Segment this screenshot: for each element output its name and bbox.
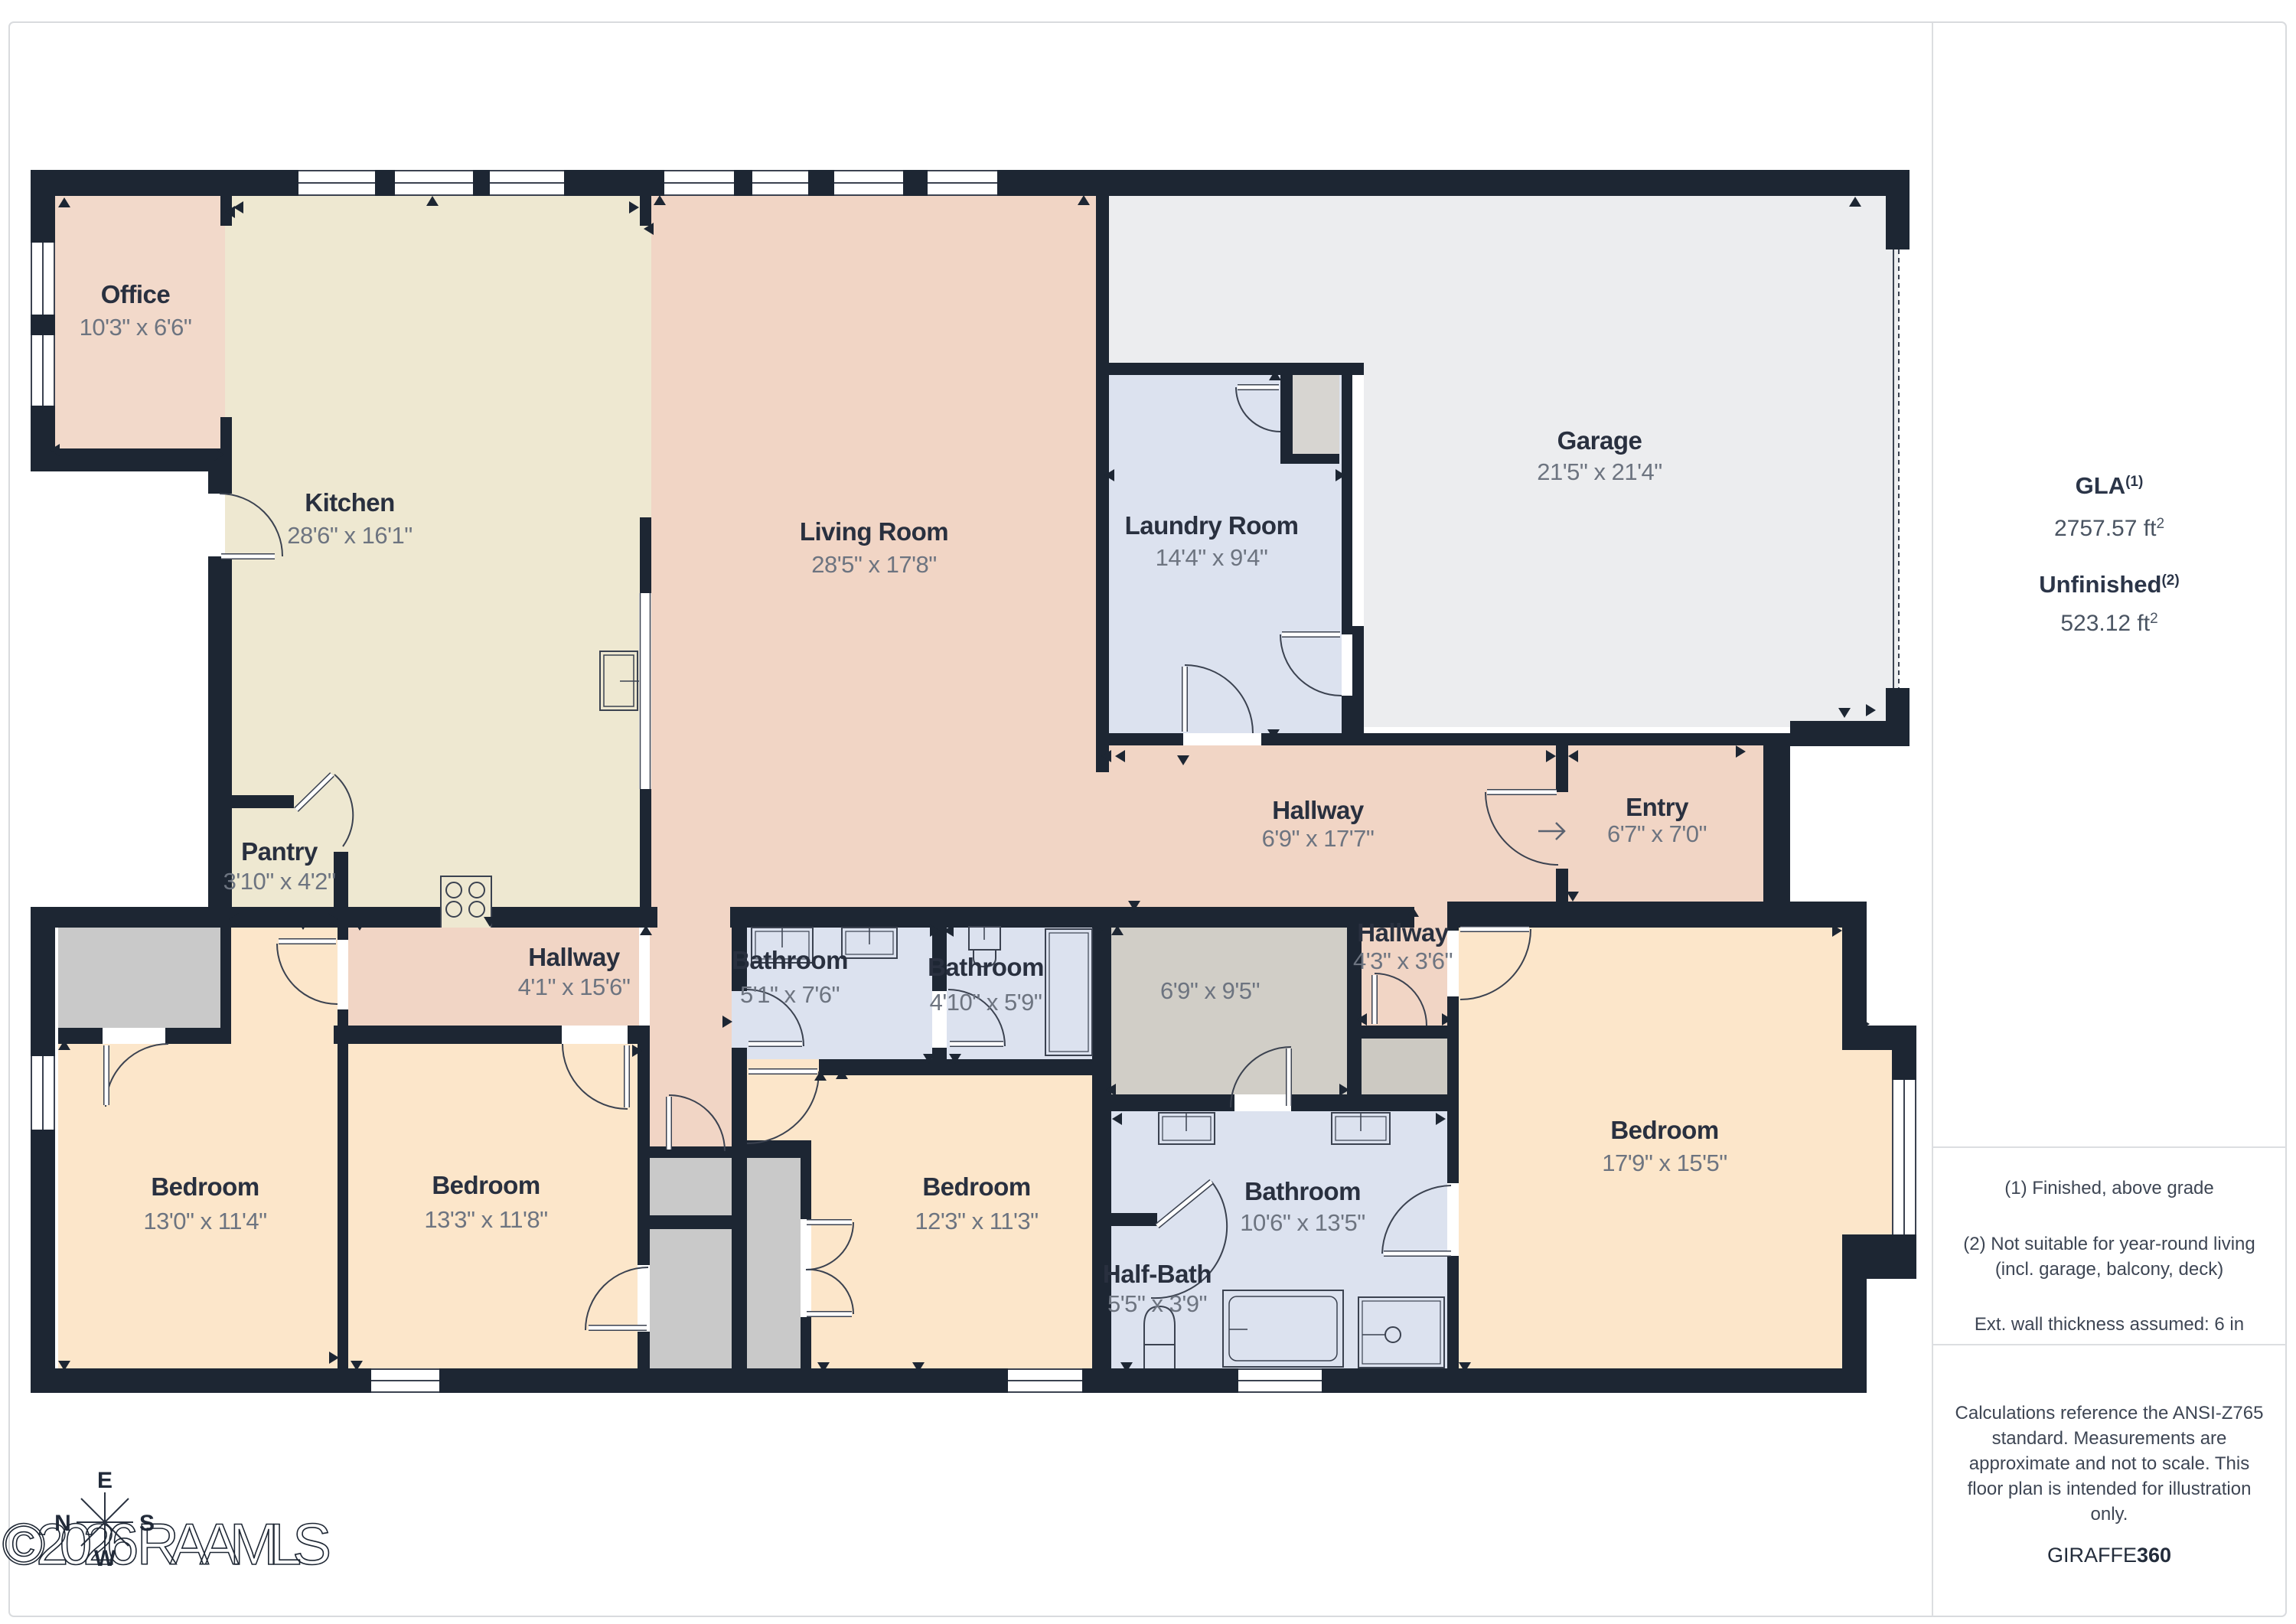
svg-text:17'9" x 15'5": 17'9" x 15'5" — [1602, 1150, 1727, 1176]
svg-text:4'10" x 5'9": 4'10" x 5'9" — [930, 989, 1042, 1016]
svg-text:(1) Finished, above grade: (1) Finished, above grade — [2004, 1178, 2214, 1198]
svg-text:Garage: Garage — [1557, 426, 1642, 455]
svg-text:28'5" x 17'8": 28'5" x 17'8" — [811, 551, 937, 578]
svg-text:Calculations reference the ANS: Calculations reference the ANSI-Z765 — [1955, 1403, 2264, 1423]
svg-text:4'1" x 15'6": 4'1" x 15'6" — [518, 973, 631, 1000]
svg-text:Unfinished(2): Unfinished(2) — [2039, 571, 2179, 598]
svg-text:523.12 ft2: 523.12 ft2 — [2060, 611, 2157, 636]
svg-text:10'6" x 13'5": 10'6" x 13'5" — [1240, 1209, 1365, 1236]
svg-text:5'1" x 7'6": 5'1" x 7'6" — [740, 981, 840, 1008]
svg-text:GIRAFFE360: GIRAFFE360 — [2047, 1544, 2171, 1567]
svg-text:14'4" x 9'4": 14'4" x 9'4" — [1156, 544, 1268, 571]
svg-text:Bedroom: Bedroom — [922, 1172, 1030, 1201]
svg-text:5'5" x 3'9": 5'5" x 3'9" — [1107, 1290, 1207, 1317]
svg-text:21'5" x 21'4": 21'5" x 21'4" — [1537, 458, 1662, 485]
svg-text:Bedroom: Bedroom — [1610, 1116, 1718, 1144]
svg-text:2757.57 ft2: 2757.57 ft2 — [2054, 516, 2164, 541]
svg-text:12'3" x 11'3": 12'3" x 11'3" — [915, 1208, 1038, 1234]
svg-text:6'7" x 7'0": 6'7" x 7'0" — [1607, 820, 1707, 847]
svg-text:Ext. wall thickness assumed: 6: Ext. wall thickness assumed: 6 in — [1975, 1314, 2244, 1335]
svg-text:Half-Bath: Half-Bath — [1103, 1260, 1212, 1288]
svg-text:Bathroom: Bathroom — [1244, 1177, 1361, 1205]
svg-text:Bedroom: Bedroom — [151, 1172, 259, 1201]
svg-text:E: E — [97, 1468, 113, 1493]
svg-text:6'9" x 17'7": 6'9" x 17'7" — [1262, 825, 1375, 852]
svg-text:Pantry: Pantry — [241, 837, 318, 866]
svg-text:Living Room: Living Room — [800, 517, 948, 546]
svg-text:floor plan is intended for ill: floor plan is intended for illustration — [1968, 1479, 2252, 1499]
svg-text:28'6" x 16'1": 28'6" x 16'1" — [287, 522, 413, 549]
svg-text:(incl. garage, balcony, deck): (incl. garage, balcony, deck) — [1995, 1259, 2223, 1280]
svg-text:approximate and not to scale.: approximate and not to scale. This — [1969, 1453, 2249, 1474]
svg-text:Office: Office — [101, 280, 171, 308]
svg-text:Kitchen: Kitchen — [305, 488, 395, 517]
svg-text:13'0" x 11'4": 13'0" x 11'4" — [143, 1208, 266, 1234]
svg-text:Hallway: Hallway — [1272, 796, 1365, 824]
svg-text:Bathroom: Bathroom — [928, 953, 1044, 981]
svg-text:standard. Measurements are: standard. Measurements are — [1992, 1428, 2227, 1449]
svg-text:Hallway: Hallway — [528, 943, 621, 971]
svg-text:©2026 RAAMLS: ©2026 RAAMLS — [2, 1512, 331, 1577]
svg-text:only.: only. — [2091, 1504, 2128, 1525]
svg-text:Bathroom: Bathroom — [732, 946, 848, 974]
svg-text:Hallway: Hallway — [1357, 918, 1450, 947]
svg-text:6'9" x 9'5": 6'9" x 9'5" — [1160, 977, 1260, 1004]
svg-text:Laundry Room: Laundry Room — [1125, 511, 1299, 540]
svg-text:(2) Not suitable for year-roun: (2) Not suitable for year-round living — [1963, 1234, 2255, 1254]
svg-text:Entry: Entry — [1626, 793, 1689, 821]
svg-text:Bedroom: Bedroom — [432, 1171, 540, 1199]
svg-text:13'3" x 11'8": 13'3" x 11'8" — [424, 1206, 547, 1233]
svg-text:4'3" x 3'6": 4'3" x 3'6" — [1353, 947, 1453, 974]
svg-text:10'3" x 6'6": 10'3" x 6'6" — [80, 314, 192, 341]
svg-text:3'10" x 4'2": 3'10" x 4'2" — [223, 868, 336, 895]
